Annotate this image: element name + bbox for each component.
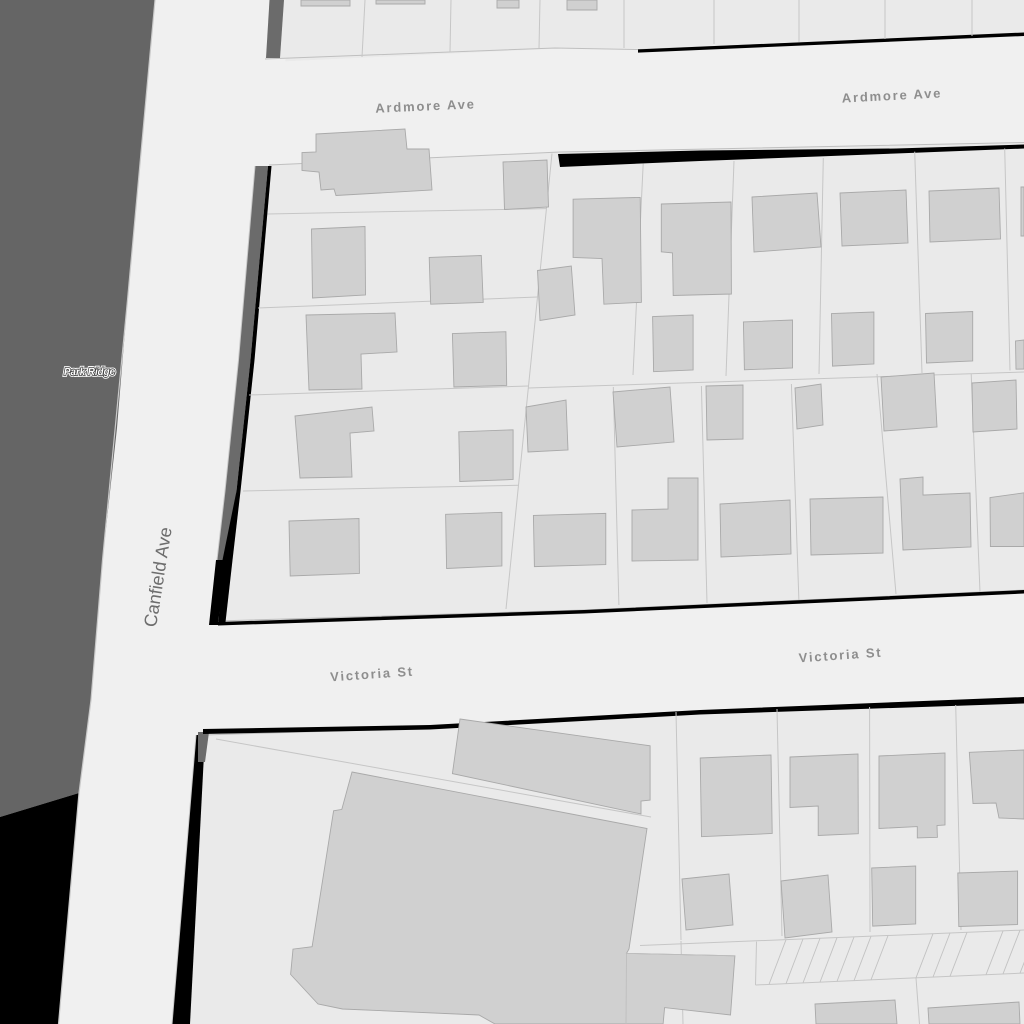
svg-text:Park Ridge: Park Ridge [64,366,115,378]
